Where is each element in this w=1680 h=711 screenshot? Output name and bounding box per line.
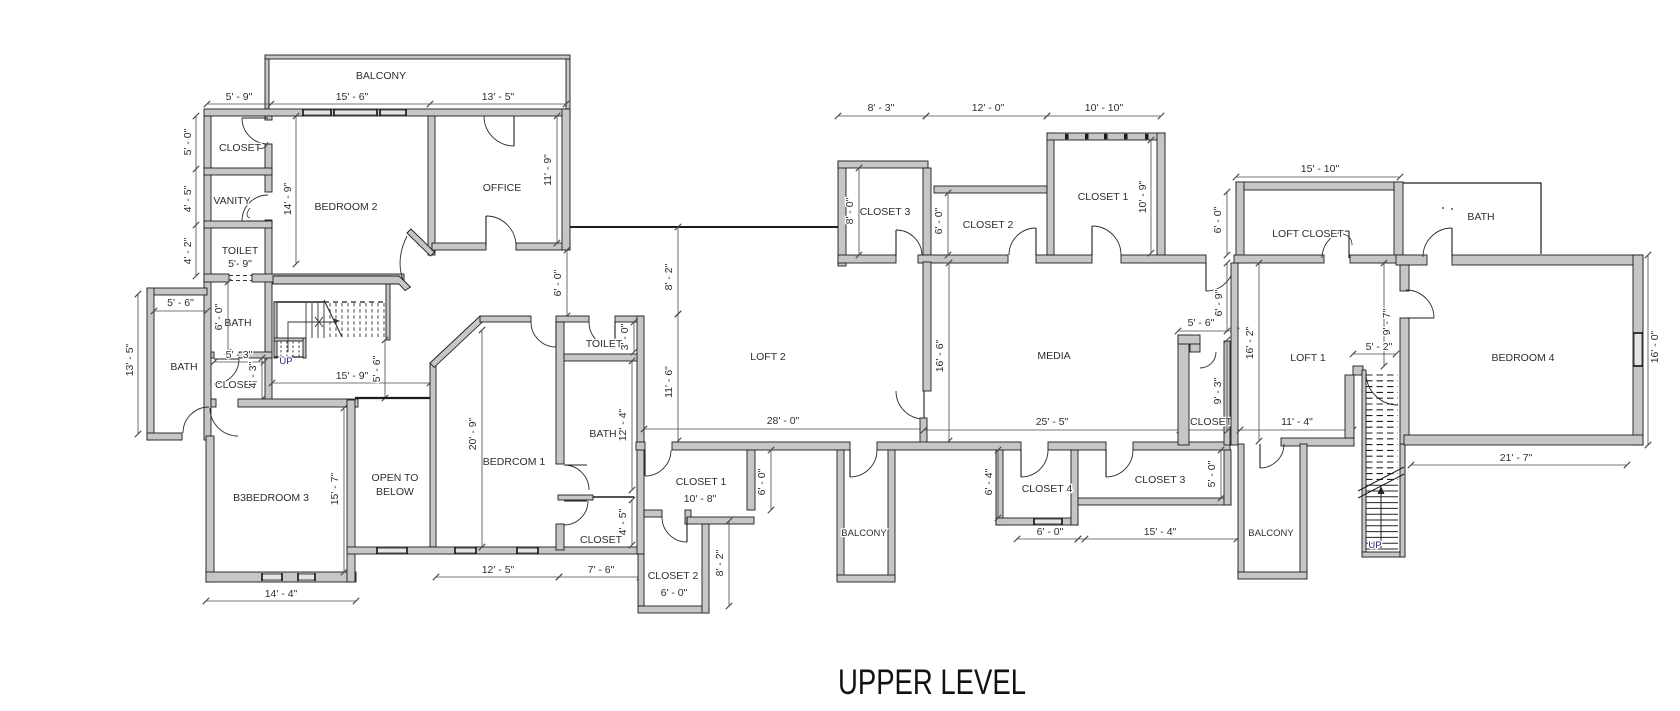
svg-text:CLOSET 3: CLOSET 3 xyxy=(860,206,911,218)
svg-text:CLOSET 1: CLOSET 1 xyxy=(1078,191,1129,203)
svg-text:BEDROOM 2: BEDROOM 2 xyxy=(314,201,377,213)
svg-text:6' - 0": 6' - 0" xyxy=(552,269,564,296)
svg-text:4' - 2": 4' - 2" xyxy=(182,237,194,264)
svg-text:OFFICE: OFFICE xyxy=(483,182,522,194)
svg-text:B3BEDROOM 3: B3BEDROOM 3 xyxy=(233,492,309,504)
svg-text:4' - 5": 4' - 5" xyxy=(617,508,629,535)
svg-text:5' - 0": 5' - 0" xyxy=(1206,460,1218,487)
svg-text:5'- 9": 5'- 9" xyxy=(228,258,252,270)
svg-text:8' - 2": 8' - 2" xyxy=(714,549,726,576)
svg-text:8' - 2": 8' - 2" xyxy=(663,263,675,290)
svg-text:CLOSET 1: CLOSET 1 xyxy=(676,476,727,488)
svg-text:6' - 0": 6' - 0" xyxy=(1037,526,1064,538)
svg-text:16' - 2": 16' - 2" xyxy=(1244,326,1256,359)
svg-text:11' - 4": 11' - 4" xyxy=(1281,416,1313,428)
svg-text:LOFT 2: LOFT 2 xyxy=(750,351,786,363)
svg-text:BALCONY: BALCONY xyxy=(841,528,887,539)
svg-text:6' - 0": 6' - 0" xyxy=(213,303,225,330)
svg-text:CLOSET: CLOSET xyxy=(219,142,262,154)
svg-text:15' - 7": 15' - 7" xyxy=(329,472,341,505)
svg-text:OPEN TO: OPEN TO xyxy=(372,472,419,484)
svg-text:10' - 10": 10' - 10" xyxy=(1085,102,1124,114)
svg-text:CLOSET 2: CLOSET 2 xyxy=(963,219,1014,231)
svg-text:28' - 0": 28' - 0" xyxy=(767,415,800,427)
svg-text:CLOSET 4: CLOSET 4 xyxy=(1022,483,1073,495)
svg-text:CLOSET: CLOSET xyxy=(1190,416,1233,428)
svg-text:BATH: BATH xyxy=(170,361,197,373)
svg-text:6' - 4": 6' - 4" xyxy=(983,468,995,495)
svg-text:9' - 7": 9' - 7" xyxy=(1381,308,1393,335)
svg-text:5' - 2": 5' - 2" xyxy=(1366,341,1393,353)
svg-text:15' - 9": 15' - 9" xyxy=(336,370,369,382)
svg-text:6' - 0": 6' - 0" xyxy=(1212,206,1224,233)
svg-text:3' - 0": 3' - 0" xyxy=(619,323,631,350)
svg-text:TOILET: TOILET xyxy=(586,338,623,350)
svg-text:5' - 6": 5' - 6" xyxy=(167,297,194,309)
svg-text:15' - 4": 15' - 4" xyxy=(1144,526,1177,538)
svg-text:6' - 0": 6' - 0" xyxy=(661,587,688,599)
svg-text:UPPER LEVEL: UPPER LEVEL xyxy=(838,663,1026,702)
svg-text:10' - 9": 10' - 9" xyxy=(1137,180,1149,213)
svg-text:TOILET: TOILET xyxy=(222,245,259,257)
svg-text:9' - 3": 9' - 3" xyxy=(1212,377,1224,404)
svg-text:BATH: BATH xyxy=(224,317,251,329)
svg-text:8' - 0": 8' - 0" xyxy=(844,197,856,224)
svg-text:LOFT 1: LOFT 1 xyxy=(1290,352,1326,364)
svg-text:5' - 3": 5' - 3" xyxy=(226,349,253,361)
svg-text:BALCONY: BALCONY xyxy=(356,70,406,82)
svg-text:14' - 9": 14' - 9" xyxy=(282,182,294,215)
svg-text:BALCONY: BALCONY xyxy=(1248,528,1294,539)
svg-text:BATH: BATH xyxy=(1467,211,1494,223)
svg-text:BATH: BATH xyxy=(589,428,616,440)
svg-text:12' - 5": 12' - 5" xyxy=(482,564,515,576)
svg-text:5' - 9": 5' - 9" xyxy=(226,91,253,103)
svg-text:15' - 10": 15' - 10" xyxy=(1301,163,1340,175)
svg-text:7' - 6": 7' - 6" xyxy=(588,564,615,576)
svg-text:UP: UP xyxy=(279,356,292,367)
svg-text:16' - 6": 16' - 6" xyxy=(934,339,946,372)
svg-text:BELOW: BELOW xyxy=(376,486,414,498)
svg-text:UP: UP xyxy=(1368,540,1381,551)
svg-text:6' - 0": 6' - 0" xyxy=(756,468,768,495)
svg-text:20' - 9": 20' - 9" xyxy=(467,417,479,450)
svg-text:8' - 3": 8' - 3" xyxy=(868,102,895,114)
svg-text:4' - 5": 4' - 5" xyxy=(182,185,194,212)
svg-text:10' - 8": 10' - 8" xyxy=(684,493,717,505)
svg-text:5' - 0": 5' - 0" xyxy=(182,128,194,155)
svg-text:6' - 0": 6' - 0" xyxy=(933,207,945,234)
svg-text:13' - 5": 13' - 5" xyxy=(124,343,136,376)
svg-text:11' - 6": 11' - 6" xyxy=(663,366,675,398)
svg-text:14' - 4": 14' - 4" xyxy=(265,588,298,600)
svg-text:25' - 5": 25' - 5" xyxy=(1036,416,1069,428)
svg-text:6' - 9": 6' - 9" xyxy=(1213,289,1225,316)
svg-text:5' - 6": 5' - 6" xyxy=(371,355,383,382)
svg-text:CLOSET 3: CLOSET 3 xyxy=(1135,474,1186,486)
svg-text:15' - 6": 15' - 6" xyxy=(336,91,369,103)
svg-text:LOFT CLOSET: LOFT CLOSET xyxy=(1272,228,1344,240)
svg-text:21' - 7": 21' - 7" xyxy=(1500,452,1533,464)
svg-text:BEDRCOM 1: BEDRCOM 1 xyxy=(483,456,546,468)
svg-text:MEDIA: MEDIA xyxy=(1037,350,1070,362)
svg-text:11' - 9": 11' - 9" xyxy=(542,154,554,186)
svg-text:13' - 5": 13' - 5" xyxy=(482,91,515,103)
svg-text:5' - 6": 5' - 6" xyxy=(1188,317,1215,329)
svg-text:VANITY: VANITY xyxy=(213,195,250,207)
svg-text:CLOSET 2: CLOSET 2 xyxy=(648,570,699,582)
svg-text:16' - 0": 16' - 0" xyxy=(1649,330,1661,363)
svg-text:12' - 0": 12' - 0" xyxy=(972,102,1005,114)
svg-text:BEDROOM 4: BEDROOM 4 xyxy=(1491,352,1554,364)
svg-text:12' - 4": 12' - 4" xyxy=(617,408,629,441)
svg-text:4' - 3": 4' - 3" xyxy=(247,361,259,388)
